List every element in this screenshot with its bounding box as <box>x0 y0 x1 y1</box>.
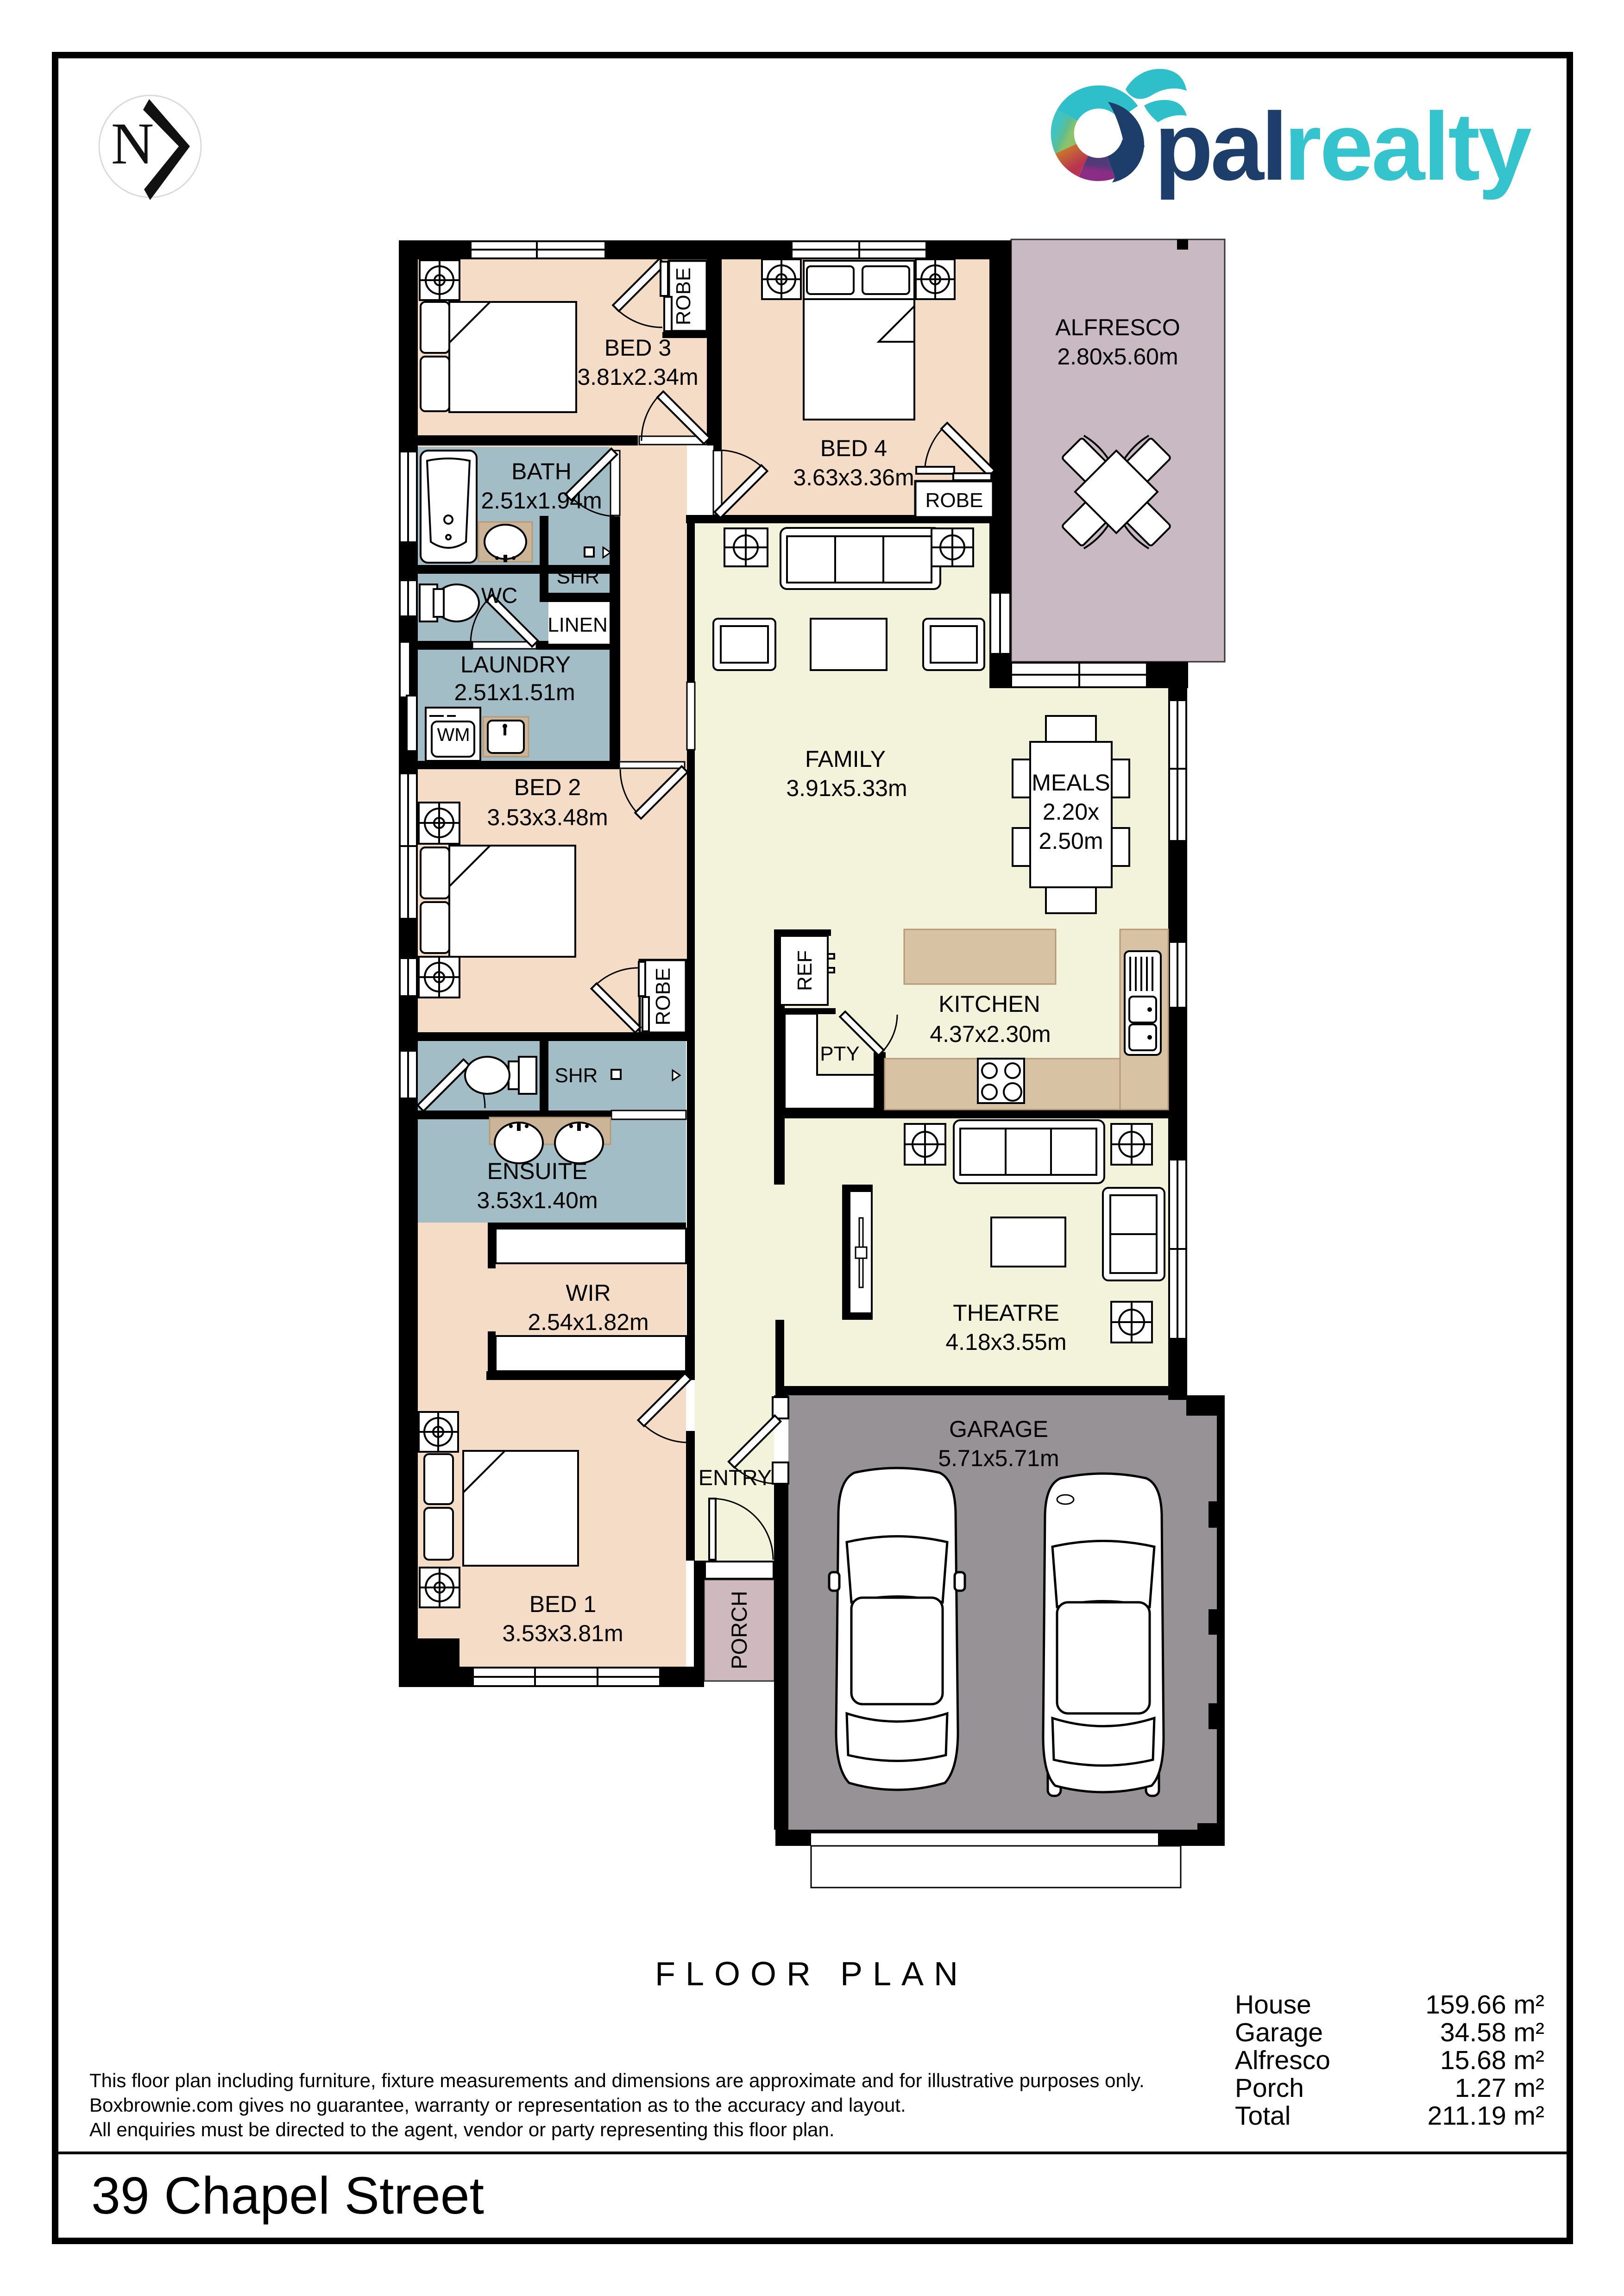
svg-text:SHR: SHR <box>557 565 600 588</box>
svg-text:WC: WC <box>481 583 517 608</box>
svg-text:2.20x: 2.20x <box>1043 799 1099 825</box>
svg-text:GARAGE: GARAGE <box>949 1416 1048 1442</box>
svg-text:THEATRE: THEATRE <box>953 1300 1059 1326</box>
svg-text:3.91x5.33m: 3.91x5.33m <box>786 775 907 801</box>
svg-text:3.53x3.48m: 3.53x3.48m <box>487 804 608 830</box>
svg-text:BED 2: BED 2 <box>514 774 581 800</box>
svg-text:House: House <box>1235 1990 1311 2020</box>
svg-text:1.27 m²: 1.27 m² <box>1455 2073 1544 2103</box>
svg-text:LAUNDRY: LAUNDRY <box>460 652 571 678</box>
svg-text:WIR: WIR <box>566 1280 611 1306</box>
svg-text:KITCHEN: KITCHEN <box>938 991 1040 1017</box>
svg-text:ENTRY: ENTRY <box>699 1465 772 1490</box>
svg-text:ALFRESCO: ALFRESCO <box>1055 314 1180 340</box>
svg-text:3.81x2.34m: 3.81x2.34m <box>577 364 698 390</box>
svg-text:34.58 m²: 34.58 m² <box>1440 2018 1544 2047</box>
svg-text:SHR: SHR <box>555 1064 598 1087</box>
svg-text:ENSUITE: ENSUITE <box>487 1158 588 1184</box>
svg-text:4.37x2.30m: 4.37x2.30m <box>930 1021 1051 1047</box>
svg-text:MEALS: MEALS <box>1032 770 1110 796</box>
svg-text:3.53x1.40m: 3.53x1.40m <box>477 1187 598 1213</box>
svg-text:Total: Total <box>1235 2101 1290 2131</box>
svg-text:pal: pal <box>1154 93 1285 201</box>
svg-text:ROBE: ROBE <box>925 489 983 512</box>
svg-text:BED 1: BED 1 <box>529 1591 597 1617</box>
svg-text:4.18x3.55m: 4.18x3.55m <box>945 1329 1066 1355</box>
svg-text:Boxbrownie.com gives no guaran: Boxbrownie.com gives no guarantee, warra… <box>89 2094 906 2116</box>
svg-text:2.54x1.82m: 2.54x1.82m <box>528 1309 648 1335</box>
svg-text:39 Chapel Street: 39 Chapel Street <box>91 2166 484 2225</box>
svg-text:3.53x3.81m: 3.53x3.81m <box>502 1620 623 1646</box>
svg-text:WM: WM <box>437 725 470 745</box>
svg-text:FLOOR PLAN: FLOOR PLAN <box>655 1956 968 1993</box>
svg-text:2.51x1.51m: 2.51x1.51m <box>454 679 575 705</box>
svg-text:2.80x5.60m: 2.80x5.60m <box>1057 344 1178 370</box>
svg-text:Garage: Garage <box>1235 2018 1323 2047</box>
svg-text:Porch: Porch <box>1235 2073 1304 2103</box>
svg-text:N: N <box>111 111 154 176</box>
svg-text:PORCH: PORCH <box>727 1591 751 1669</box>
svg-text:realty: realty <box>1284 93 1531 201</box>
svg-text:This floor plan including furn: This floor plan including furniture, fix… <box>89 2070 1145 2091</box>
svg-text:ROBE: ROBE <box>652 968 674 1026</box>
svg-text:REF: REF <box>793 950 816 991</box>
svg-text:BED 3: BED 3 <box>604 335 672 361</box>
svg-text:PTY: PTY <box>820 1042 860 1065</box>
svg-text:3.63x3.36m: 3.63x3.36m <box>793 464 914 490</box>
svg-text:BED 4: BED 4 <box>820 435 888 461</box>
svg-text:5.71x5.71m: 5.71x5.71m <box>938 1445 1059 1471</box>
svg-text:BATH: BATH <box>511 458 572 484</box>
svg-text:ROBE: ROBE <box>672 268 695 326</box>
svg-text:15.68 m²: 15.68 m² <box>1440 2045 1544 2075</box>
svg-text:2.50m: 2.50m <box>1039 828 1103 854</box>
svg-text:Alfresco: Alfresco <box>1235 2045 1330 2075</box>
svg-text:All enquiries must be directed: All enquiries must be directed to the ag… <box>89 2119 835 2140</box>
svg-text:159.66 m²: 159.66 m² <box>1425 1990 1544 2020</box>
svg-text:FAMILY: FAMILY <box>805 746 886 772</box>
svg-text:LINEN: LINEN <box>548 614 608 636</box>
svg-text:211.19 m²: 211.19 m² <box>1428 2101 1544 2131</box>
svg-text:2.51x1.94m: 2.51x1.94m <box>481 488 602 514</box>
